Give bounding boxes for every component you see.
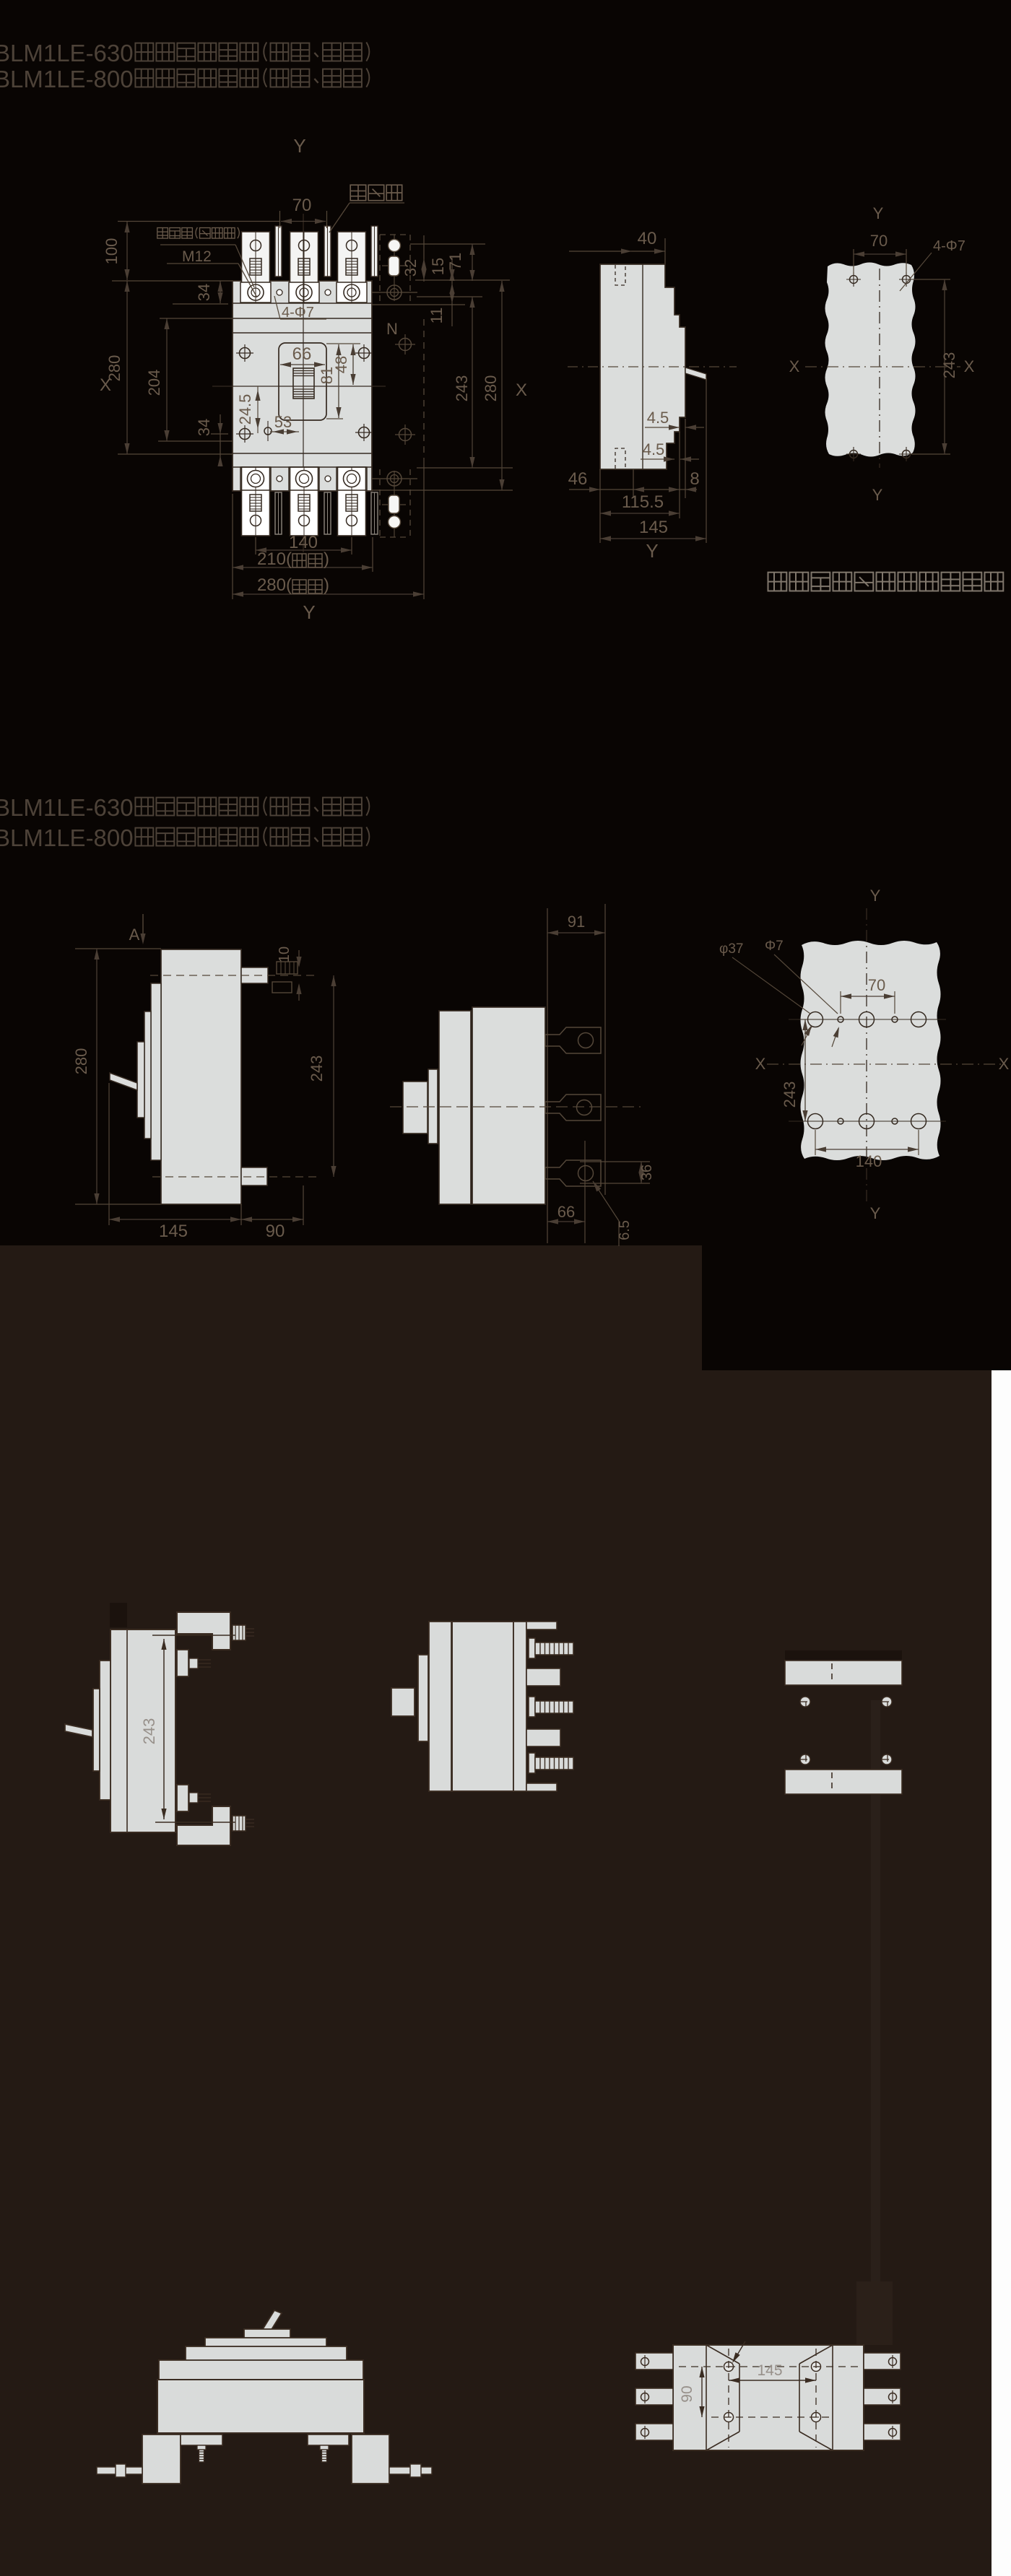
svg-text:66: 66	[292, 344, 312, 364]
svg-text:140: 140	[289, 533, 318, 552]
svg-text:145: 145	[159, 1222, 188, 1241]
svg-text:Y: Y	[873, 204, 884, 222]
svg-text:145: 145	[757, 2362, 782, 2379]
svg-text:70: 70	[870, 232, 888, 250]
svg-text:8: 8	[690, 469, 699, 489]
svg-text:115.5: 115.5	[622, 492, 664, 512]
svg-text:24.5: 24.5	[236, 394, 254, 425]
svg-text:15: 15	[429, 258, 447, 275]
svg-text:100: 100	[103, 238, 121, 265]
svg-text:210(: 210(	[257, 549, 292, 569]
svg-text:X: X	[516, 380, 527, 400]
svg-text:53: 53	[274, 413, 292, 431]
svg-text:Y: Y	[872, 486, 883, 504]
svg-text:91: 91	[568, 913, 585, 931]
svg-text:Y: Y	[646, 540, 658, 562]
svg-text:Y: Y	[303, 601, 315, 623]
svg-text:46: 46	[568, 469, 588, 489]
svg-text:Y: Y	[870, 1204, 881, 1222]
svg-text:BLM1LE-800: BLM1LE-800	[0, 824, 134, 851]
svg-text:280(: 280(	[257, 575, 292, 595]
svg-text:70: 70	[292, 196, 312, 215]
svg-text:11: 11	[428, 308, 446, 324]
svg-text:48: 48	[332, 356, 350, 373]
svg-text:X: X	[789, 357, 800, 375]
svg-text:10: 10	[277, 947, 292, 962]
svg-text:): )	[324, 575, 329, 595]
svg-text:90: 90	[679, 2385, 695, 2402]
svg-text:Φ7: Φ7	[765, 939, 784, 954]
svg-text:145: 145	[639, 518, 668, 537]
svg-text:φ37: φ37	[719, 941, 743, 957]
svg-text:66: 66	[557, 1203, 575, 1221]
svg-text:4.5: 4.5	[643, 440, 665, 458]
svg-text:140: 140	[856, 1152, 882, 1170]
svg-text:36: 36	[639, 1165, 655, 1180]
svg-text:BLM1LE-630: BLM1LE-630	[0, 794, 134, 821]
svg-text:243: 243	[781, 1082, 799, 1108]
svg-text:34: 34	[195, 284, 213, 301]
svg-text:32: 32	[402, 259, 420, 277]
svg-text:34: 34	[195, 419, 213, 436]
svg-text:X: X	[964, 357, 975, 375]
svg-text:243: 243	[140, 1718, 158, 1745]
svg-text:Y: Y	[293, 135, 305, 157]
svg-text:X: X	[999, 1055, 1010, 1073]
svg-text:243: 243	[308, 1056, 326, 1082]
svg-text:N: N	[386, 320, 398, 338]
svg-text:70: 70	[868, 976, 885, 994]
svg-text:90: 90	[266, 1222, 285, 1241]
svg-text:BLM1LE-800: BLM1LE-800	[0, 66, 134, 92]
svg-text:243: 243	[453, 375, 471, 402]
svg-text:280: 280	[105, 355, 123, 382]
svg-text:A: A	[129, 926, 140, 944]
svg-text:BLM1LE-630: BLM1LE-630	[0, 40, 134, 66]
svg-text:M12: M12	[182, 248, 212, 265]
svg-text:243: 243	[940, 352, 958, 379]
svg-text:4-Φ7: 4-Φ7	[933, 238, 966, 254]
svg-text:Y: Y	[870, 887, 881, 905]
svg-text:280: 280	[72, 1048, 90, 1075]
svg-text:X: X	[755, 1055, 766, 1073]
svg-text:204: 204	[145, 370, 163, 396]
svg-text:): )	[324, 549, 329, 569]
svg-text:6.5: 6.5	[617, 1220, 633, 1240]
svg-text:4.5: 4.5	[647, 409, 669, 427]
svg-text:71: 71	[446, 253, 464, 270]
svg-text:4-Φ7: 4-Φ7	[282, 305, 314, 321]
svg-text:40: 40	[638, 229, 657, 248]
svg-text:280: 280	[482, 375, 500, 402]
